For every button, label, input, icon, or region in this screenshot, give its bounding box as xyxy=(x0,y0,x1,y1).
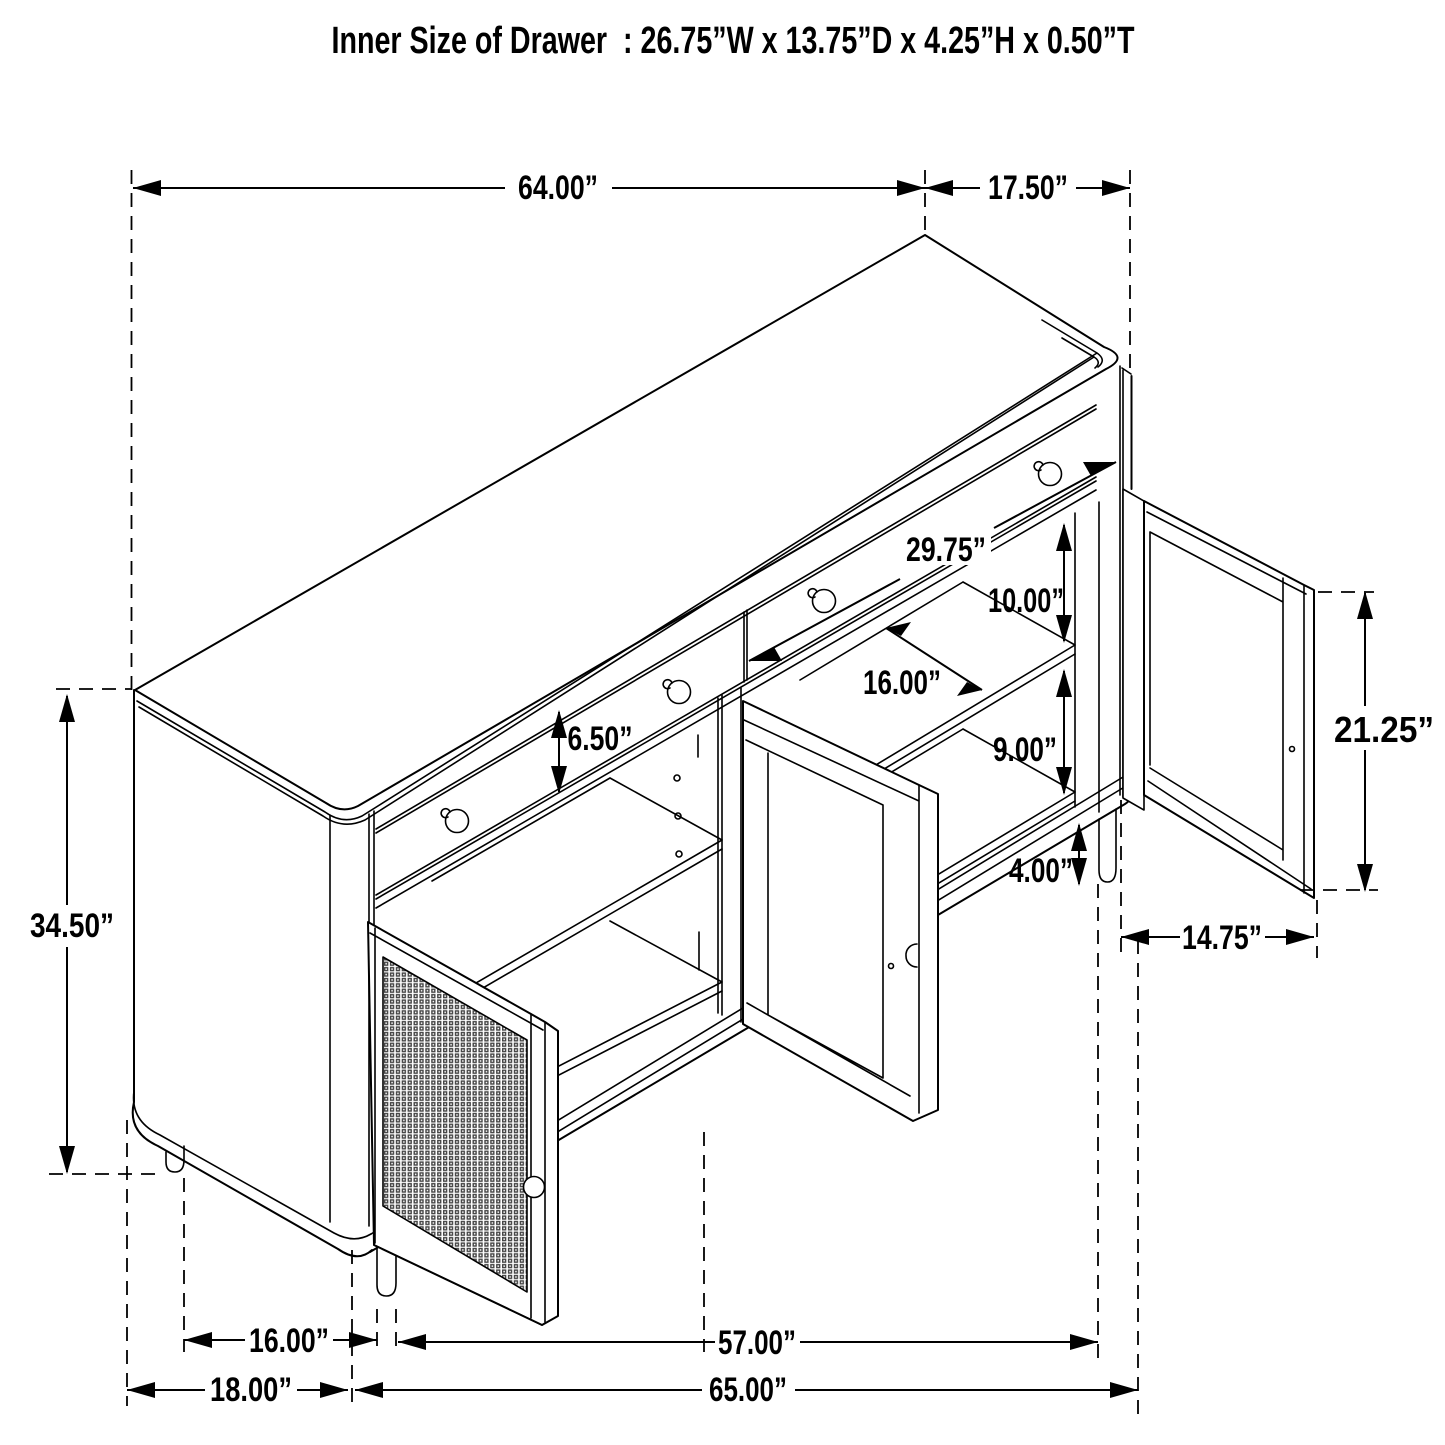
svg-text:9.00”: 9.00” xyxy=(993,731,1057,769)
svg-text:16.00”: 16.00” xyxy=(249,1322,329,1360)
svg-text:64.00”: 64.00” xyxy=(518,169,598,207)
svg-text:21.25”: 21.25” xyxy=(1334,709,1434,750)
svg-text:6.50”: 6.50” xyxy=(568,720,633,758)
svg-text:Inner Size of Drawer : 26.75”: Inner Size of Drawer : 26.75”W x 13.75”D… xyxy=(332,20,1135,62)
svg-text:4.00”: 4.00” xyxy=(1009,852,1073,890)
svg-text:10.00”: 10.00” xyxy=(988,582,1064,620)
svg-text:14.75”: 14.75” xyxy=(1182,919,1262,957)
svg-text:57.00”: 57.00” xyxy=(718,1324,796,1362)
svg-text:16.00”: 16.00” xyxy=(863,664,941,702)
svg-text:18.00”: 18.00” xyxy=(210,1371,292,1409)
svg-text:17.50”: 17.50” xyxy=(988,169,1068,207)
svg-text:34.50”: 34.50” xyxy=(30,907,114,945)
svg-text:65.00”: 65.00” xyxy=(709,1371,787,1409)
svg-text:29.75”: 29.75” xyxy=(906,531,986,569)
